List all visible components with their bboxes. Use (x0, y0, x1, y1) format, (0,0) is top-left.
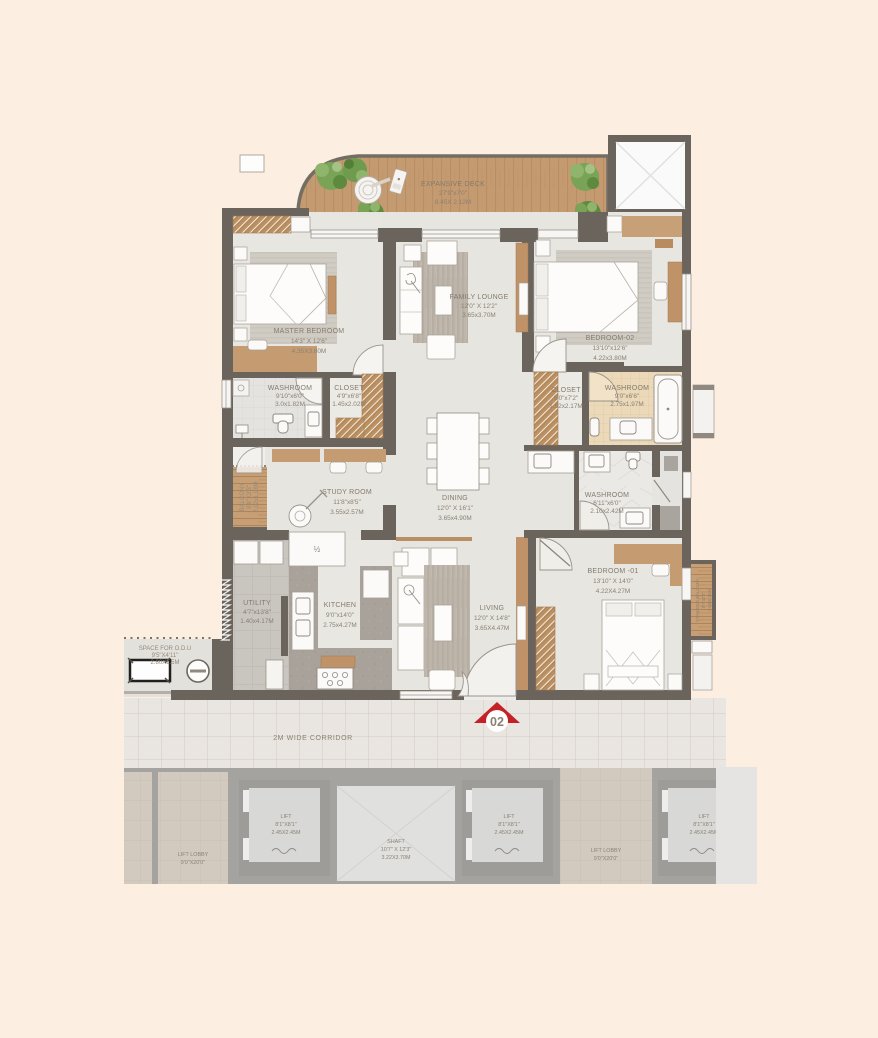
svg-text:13'10" X 14'0": 13'10" X 14'0" (593, 578, 633, 585)
svg-text:4'9"x6'8": 4'9"x6'8" (337, 393, 361, 400)
svg-text:BALCONY: BALCONY (240, 483, 246, 512)
svg-text:10'7" X 12'3": 10'7" X 12'3" (381, 847, 412, 853)
svg-text:9'0"x14'0": 9'0"x14'0" (326, 612, 354, 619)
svg-text:2.45X2.45M: 2.45X2.45M (494, 830, 524, 836)
svg-text:½: ½ (314, 545, 321, 554)
svg-text:27'9"x7'0": 27'9"x7'0" (439, 190, 467, 197)
svg-text:4'7"x13'8": 4'7"x13'8" (243, 609, 271, 616)
svg-text:SPACE FOR O.D.U: SPACE FOR O.D.U (139, 646, 192, 652)
svg-text:WASHROOM: WASHROOM (585, 492, 630, 499)
svg-text:8'8"X3'3": 8'8"X3'3" (247, 485, 253, 509)
svg-text:14'3" X 12'6": 14'3" X 12'6" (291, 338, 327, 345)
svg-text:3.65X4.47M: 3.65X4.47M (475, 625, 509, 632)
svg-text:1.52x2.17M: 1.52x2.17M (549, 403, 582, 410)
svg-text:FAMILY LOUNGE: FAMILY LOUNGE (449, 294, 508, 301)
svg-text:8'1"X8'1": 8'1"X8'1" (275, 822, 297, 828)
svg-text:8'1"X8'1": 8'1"X8'1" (693, 822, 715, 828)
svg-text:EXPANSIVE DECK: EXPANSIVE DECK (421, 181, 485, 188)
svg-text:3.0x1.82M: 3.0x1.82M (275, 401, 305, 408)
svg-text:1.40x4.17M: 1.40x4.17M (240, 618, 273, 625)
svg-text:2.75x4.27M: 2.75x4.27M (323, 622, 356, 629)
svg-text:9'0"X20'0": 9'0"X20'0" (181, 860, 206, 866)
svg-text:BEDROOM -01: BEDROOM -01 (588, 568, 639, 575)
svg-text:4.22X4.27M: 4.22X4.27M (596, 588, 630, 595)
svg-text:UTILITY: UTILITY (243, 600, 271, 607)
svg-text:13'10"x12'6": 13'10"x12'6" (592, 345, 627, 352)
svg-text:8.45X 2.12M: 8.45X 2.12M (435, 199, 471, 206)
svg-text:STANDING BALCONY: STANDING BALCONY (695, 578, 700, 622)
svg-text:LIFT: LIFT (698, 814, 710, 820)
svg-text:MASTER BEDROOM: MASTER BEDROOM (274, 328, 345, 335)
svg-text:12'0" X 16'1": 12'0" X 16'1" (437, 505, 473, 512)
svg-text:12'0" X 12'2": 12'0" X 12'2" (461, 303, 497, 310)
svg-text:3.65x3.70M: 3.65x3.70M (462, 312, 495, 319)
svg-text:12'0" X 14'8": 12'0" X 14'8" (474, 615, 510, 622)
svg-text:LIFT LOBBY: LIFT LOBBY (591, 848, 622, 854)
svg-text:1.45x2.02M: 1.45x2.02M (332, 401, 365, 408)
svg-text:3.65x4.90M: 3.65x4.90M (438, 515, 471, 522)
svg-text:STUDY ROOM: STUDY ROOM (322, 489, 372, 496)
svg-text:CLOSET: CLOSET (551, 387, 581, 394)
svg-text:4.22x3.80M: 4.22x3.80M (593, 355, 626, 362)
svg-text:9'10"x6'0": 9'10"x6'0" (276, 393, 304, 400)
svg-text:9'0"x6'6": 9'0"x6'6" (615, 393, 639, 400)
svg-text:SHAFT: SHAFT (387, 839, 405, 845)
svg-text:9'0"X20'0": 9'0"X20'0" (594, 856, 619, 862)
svg-text:2M WIDE CORRIDOR: 2M WIDE CORRIDOR (273, 735, 353, 742)
svg-text:DINING: DINING (442, 495, 468, 502)
svg-text:2.10x2.42M: 2.10x2.42M (590, 508, 623, 515)
svg-text:8'7"x2'2": 8'7"x2'2" (701, 591, 706, 607)
svg-text:LIFT: LIFT (280, 814, 292, 820)
svg-text:3.22X3.70M: 3.22X3.70M (381, 855, 411, 861)
svg-text:2.02x1.08M: 2.02x1.08M (254, 481, 260, 512)
svg-text:WASHROOM: WASHROOM (268, 385, 313, 392)
svg-text:LIVING: LIVING (480, 605, 504, 612)
svg-text:BEDROOM-02: BEDROOM-02 (586, 335, 635, 342)
svg-text:6'11"x6'0": 6'11"x6'0" (593, 500, 620, 507)
svg-text:2.60x0.66M: 2.60x0.66M (707, 589, 712, 611)
svg-text:3.55x2.57M: 3.55x2.57M (330, 509, 363, 516)
svg-text:8'1"X8'1": 8'1"X8'1" (498, 822, 520, 828)
svg-text:02: 02 (490, 715, 504, 729)
svg-text:2.80X1.5M: 2.80X1.5M (150, 660, 179, 666)
svg-text:2.45X2.45M: 2.45X2.45M (689, 830, 719, 836)
svg-text:LIFT LOBBY: LIFT LOBBY (178, 852, 209, 858)
svg-text:WASHROOM: WASHROOM (605, 385, 650, 392)
svg-text:5'0"x7'2": 5'0"x7'2" (554, 395, 578, 402)
svg-text:KITCHEN: KITCHEN (324, 602, 356, 609)
svg-text:LIFT: LIFT (503, 814, 515, 820)
svg-text:9'5"X4'11": 9'5"X4'11" (152, 653, 179, 659)
svg-text:4.35X3.80M: 4.35X3.80M (292, 348, 326, 355)
svg-text:2.45X2.45M: 2.45X2.45M (271, 830, 301, 836)
svg-text:11'8"x8'5": 11'8"x8'5" (333, 499, 360, 506)
svg-text:2.75x1.97M: 2.75x1.97M (610, 401, 643, 408)
svg-text:CLOSET: CLOSET (334, 385, 364, 392)
